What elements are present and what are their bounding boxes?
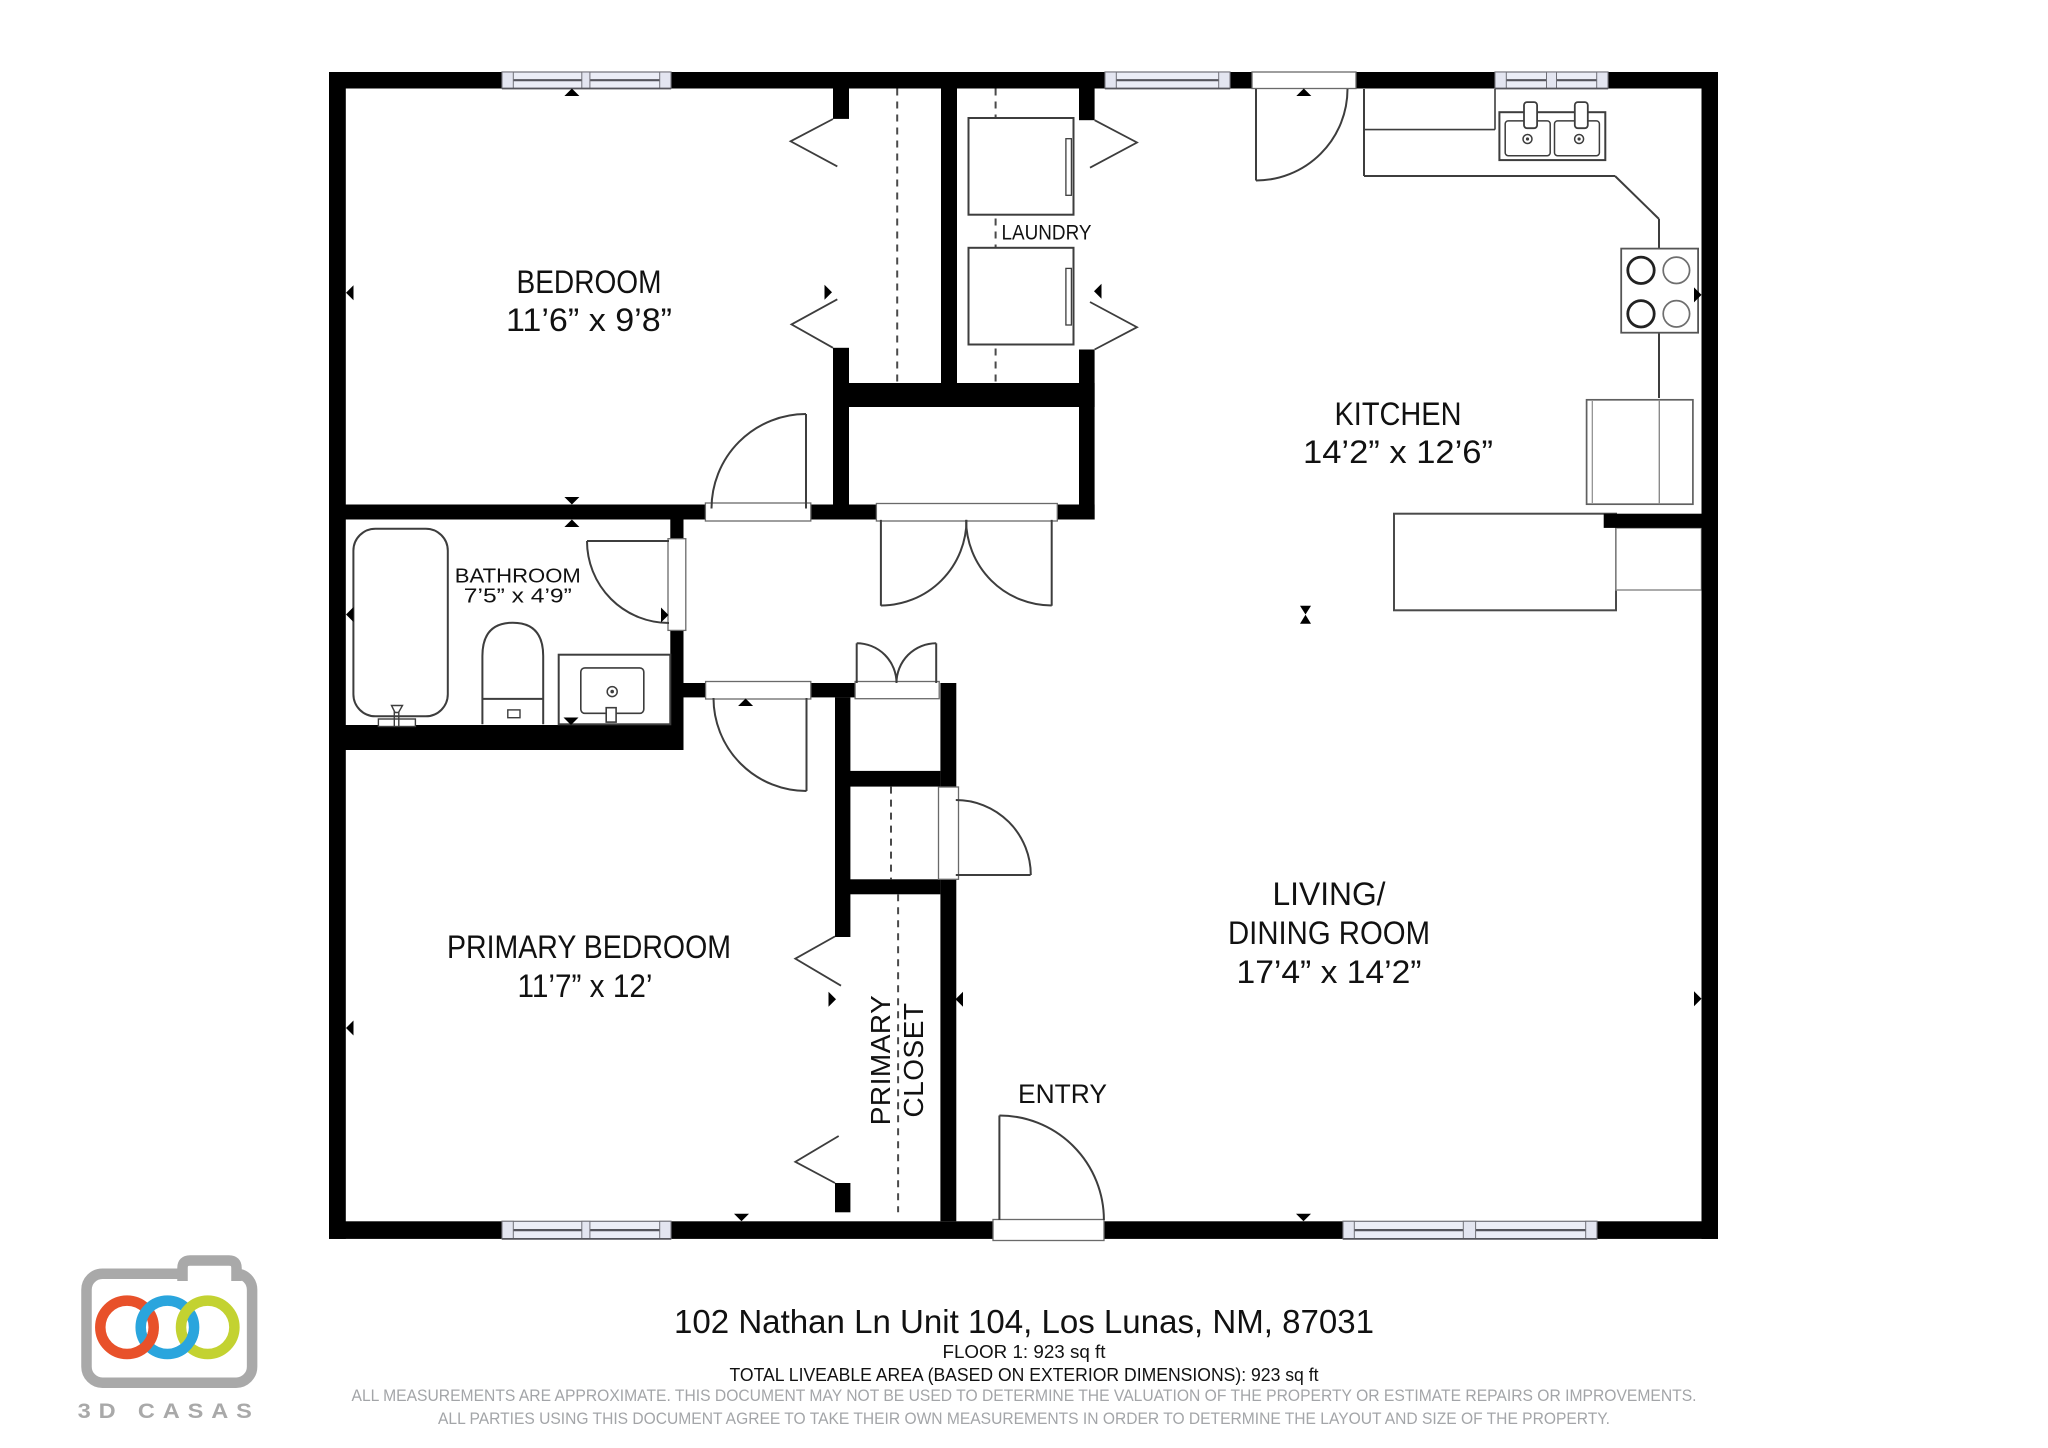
svg-text:102 Nathan Ln Unit 104, Los Lu: 102 Nathan Ln Unit 104, Los Lunas, NM, 8… xyxy=(674,1303,1374,1340)
svg-text:BATHROOM: BATHROOM xyxy=(455,566,581,588)
svg-text:7’5” x 4’9”: 7’5” x 4’9” xyxy=(464,586,572,608)
svg-text:TOTAL LIVEABLE AREA (BASED ON: TOTAL LIVEABLE AREA (BASED ON EXTERIOR D… xyxy=(730,1364,1319,1385)
svg-text:BEDROOM: BEDROOM xyxy=(517,264,662,300)
svg-text:DINING ROOM: DINING ROOM xyxy=(1228,915,1430,951)
svg-text:ALL MEASUREMENTS ARE APPROXIMA: ALL MEASUREMENTS ARE APPROXIMATE. THIS D… xyxy=(352,1386,1697,1405)
svg-text:LAUNDRY: LAUNDRY xyxy=(1002,222,1092,245)
svg-text:ENTRY: ENTRY xyxy=(1018,1079,1107,1109)
svg-text:PRIMARY BEDROOM: PRIMARY BEDROOM xyxy=(447,929,731,965)
svg-text:FLOOR 1: 923 sq ft: FLOOR 1: 923 sq ft xyxy=(943,1342,1106,1362)
svg-text:ALL PARTIES USING THIS DOCUMEN: ALL PARTIES USING THIS DOCUMENT AGREE TO… xyxy=(438,1409,1610,1428)
svg-text:11’6” x 9’8”: 11’6” x 9’8” xyxy=(506,302,672,338)
svg-text:KITCHEN: KITCHEN xyxy=(1335,396,1462,432)
svg-text:17’4” x 14’2”: 17’4” x 14’2” xyxy=(1237,954,1422,990)
svg-text:3D CASAS: 3D CASAS xyxy=(78,1400,260,1423)
svg-text:11’7” x 12’: 11’7” x 12’ xyxy=(518,968,653,1004)
svg-text:LIVING/: LIVING/ xyxy=(1273,876,1386,912)
svg-text:14’2” x 12’6”: 14’2” x 12’6” xyxy=(1303,434,1493,470)
